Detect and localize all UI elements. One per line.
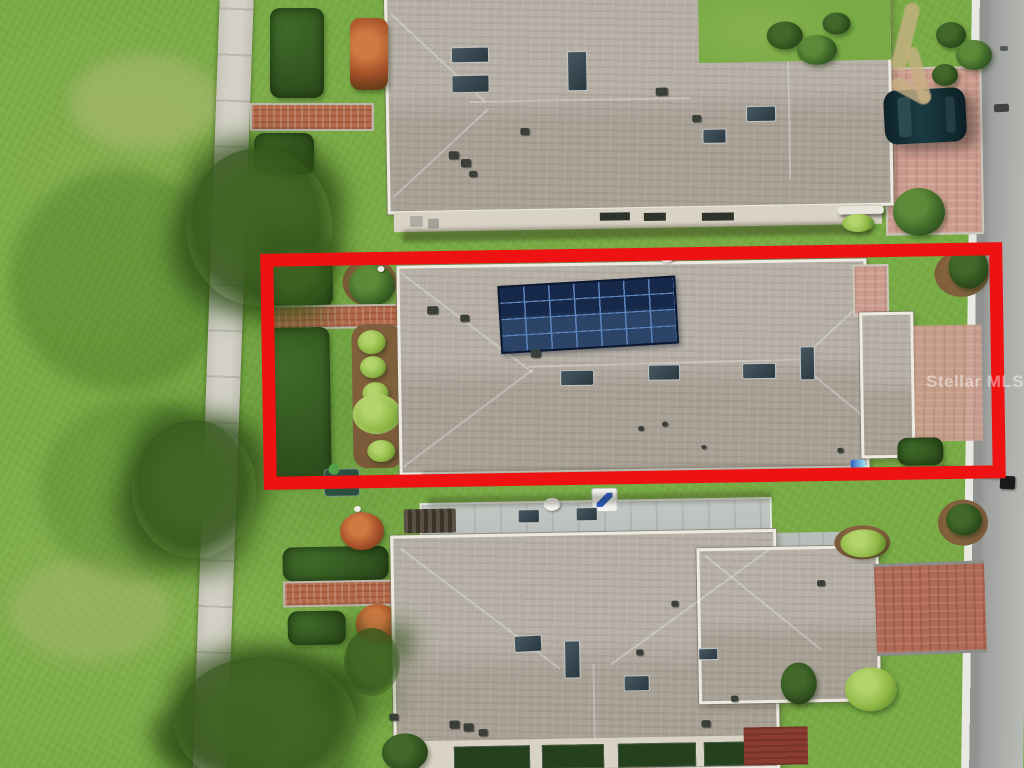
skylight (698, 648, 718, 660)
roof-vent (817, 580, 825, 586)
mls-watermark: Stellar MLS (926, 372, 1024, 392)
roof-vent (671, 601, 678, 607)
brick-patio (744, 726, 809, 765)
roof-vent (449, 720, 459, 728)
aerial-photo-scene: Stellar MLS (0, 0, 1024, 768)
hedge (282, 546, 389, 582)
flower-bush (340, 512, 385, 551)
roof-vent (389, 714, 398, 721)
skylight (518, 509, 540, 523)
lanai-window (618, 742, 696, 767)
roof-vent (479, 729, 488, 736)
skylight (576, 507, 598, 521)
skylight (514, 635, 543, 653)
skylight (624, 675, 650, 691)
lanai-window (542, 744, 604, 768)
lanai-window (454, 745, 530, 768)
roof-vent (731, 696, 738, 702)
roof-vent (636, 649, 643, 655)
south-driveway (874, 560, 987, 656)
roof-vent (463, 723, 473, 731)
skylight (564, 640, 581, 678)
property-highlight-box (260, 242, 1006, 490)
roof-vent (701, 720, 710, 727)
rooftop-equipment (404, 508, 456, 533)
hedge (287, 610, 346, 645)
small-tree (845, 667, 898, 712)
tree (132, 420, 256, 558)
shrub (382, 733, 429, 768)
palm-tree (344, 628, 400, 696)
